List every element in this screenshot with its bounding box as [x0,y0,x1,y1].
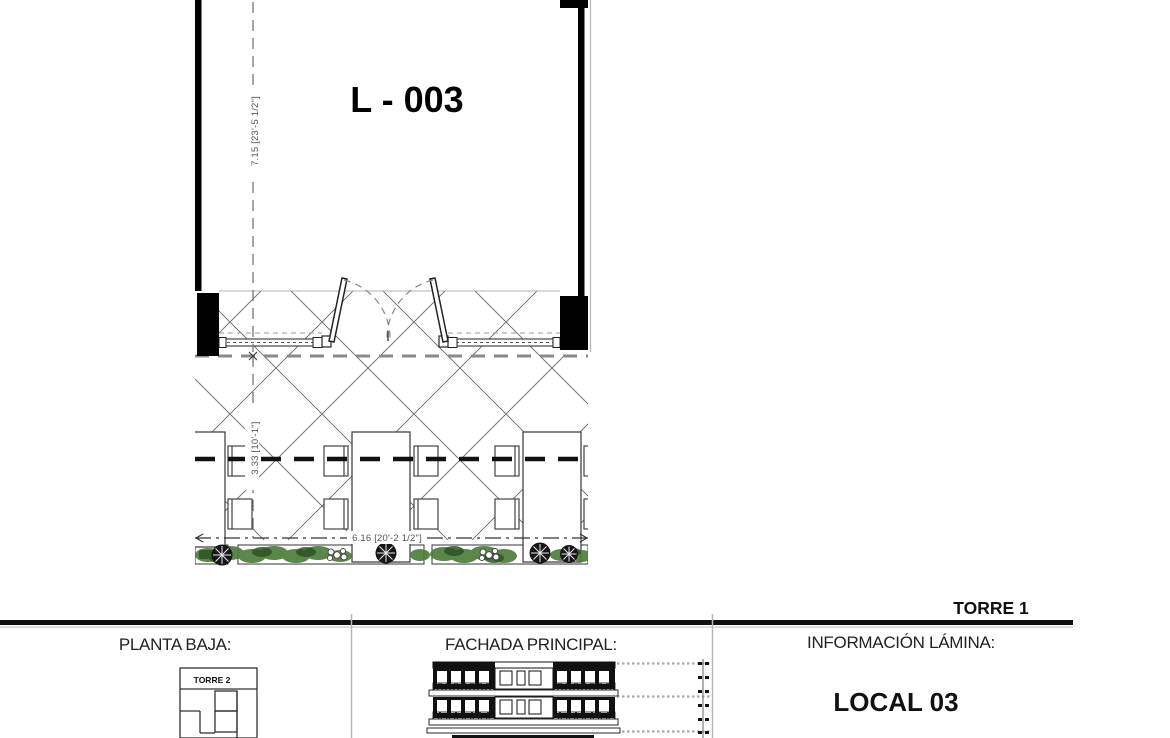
chair [584,499,608,529]
local-label: LOCAL 03 [833,687,958,717]
title-rule [0,620,1073,625]
floor-plan-svg: 7.15 [23'-5 1/2"] 3.33 [10'-1"] 6.16 [20… [0,0,1170,738]
dimension-depth-text: 7.15 [23'-5 1/2"] [250,96,261,166]
title-block: TORRE 1 PLANTA BAJA: FACHADA PRINCIPAL: … [0,598,1073,738]
table-3 [523,432,581,562]
mini-plan-label: TORRE 2 [194,675,231,685]
drawing-sheet: 7.15 [23'-5 1/2"] 3.33 [10'-1"] 6.16 [20… [0,0,1170,738]
right-wall [578,0,585,296]
heading-informacion-lamina: INFORMACIÓN LÁMINA: [807,633,995,652]
storefront-glazing-left [219,338,322,348]
right-column [560,296,588,350]
chair [584,446,608,476]
elevation-floor-upper [429,662,618,696]
dimension-width-text: 6.16 [20'-2 1/2"] [352,533,422,544]
chair [324,499,348,529]
chair [495,499,519,529]
top-right-wall-cap [560,0,588,8]
left-wall [195,0,202,291]
dimension-terrace-depth-text: 3.33 [10'-1"] [250,421,261,474]
chair [228,499,252,529]
elevation-level-markers [698,659,709,738]
heading-fachada-principal: FACHADA PRINCIPAL: [445,635,617,654]
elevation-drawing [427,659,710,738]
chair [414,499,438,529]
tower-label: TORRE 1 [953,598,1029,618]
title-rule-shadow [0,627,1073,628]
heading-planta-baja: PLANTA BAJA: [119,635,231,654]
table-1 [167,432,225,547]
storefront-glazing-right [448,338,560,348]
elevation-floor-lower [427,697,620,738]
left-column [197,293,219,356]
room-label: L - 003 [350,79,463,120]
